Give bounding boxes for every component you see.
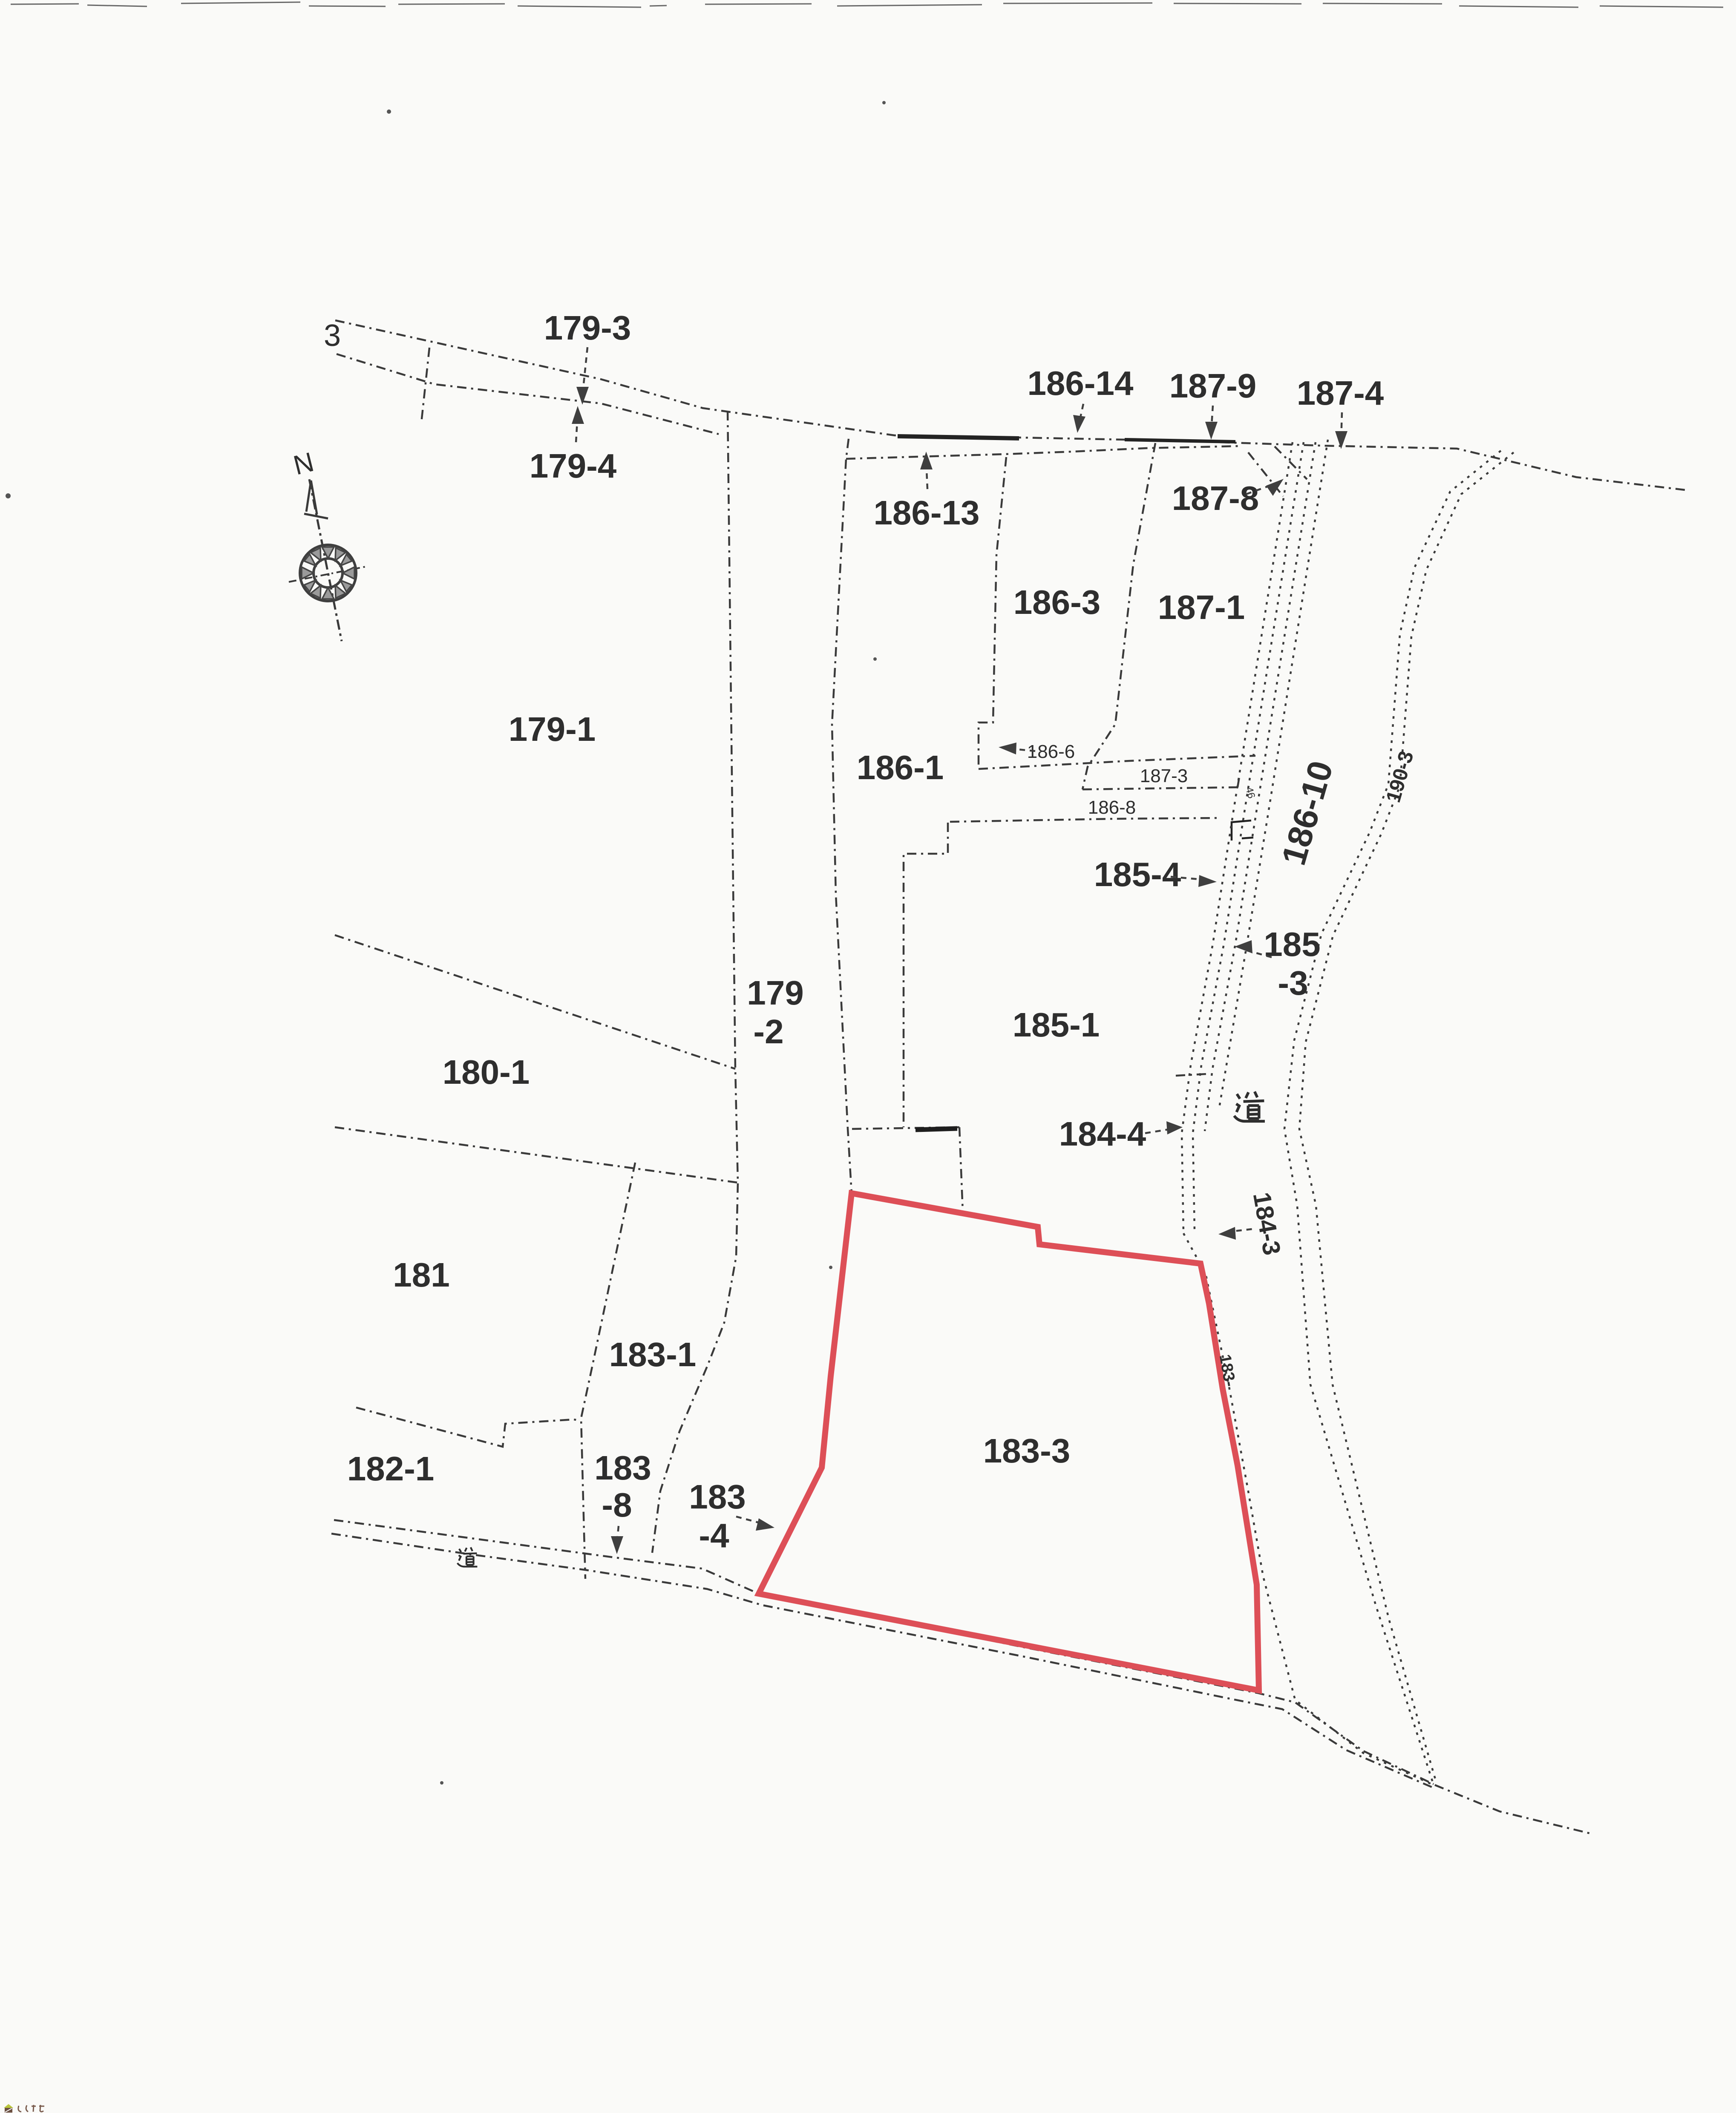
svg-text:183-3: 183-3 <box>983 1432 1071 1470</box>
svg-text:185-1: 185-1 <box>1013 1006 1100 1044</box>
svg-text:3: 3 <box>324 319 341 353</box>
svg-text:-4: -4 <box>699 1517 729 1555</box>
svg-text:186-3: 186-3 <box>1013 583 1101 621</box>
svg-text:187-1: 187-1 <box>1158 588 1245 626</box>
svg-text:185: 185 <box>1264 925 1320 963</box>
svg-text:186-14: 186-14 <box>1027 364 1134 402</box>
svg-text:183: 183 <box>689 1478 746 1516</box>
svg-text:179-3: 179-3 <box>544 309 631 347</box>
svg-text:182-1: 182-1 <box>347 1450 435 1488</box>
svg-text:179-4: 179-4 <box>530 447 617 485</box>
svg-text:185-4: 185-4 <box>1094 855 1181 893</box>
svg-text:186-1: 186-1 <box>857 748 944 786</box>
svg-text:187-4: 187-4 <box>1297 374 1384 412</box>
svg-text:181: 181 <box>393 1256 449 1294</box>
svg-text:-3: -3 <box>1278 964 1308 1002</box>
svg-text:186-13: 186-13 <box>873 494 979 532</box>
svg-text:186-8: 186-8 <box>1088 797 1136 818</box>
svg-text:-2: -2 <box>753 1013 783 1051</box>
svg-text:179: 179 <box>747 974 803 1012</box>
svg-text:179-1: 179-1 <box>509 710 596 748</box>
svg-text:180-1: 180-1 <box>443 1053 530 1091</box>
svg-text:183: 183 <box>594 1449 651 1487</box>
svg-text:187-9: 187-9 <box>1169 367 1257 405</box>
svg-text:187-3: 187-3 <box>1140 766 1188 786</box>
svg-text:184-4: 184-4 <box>1059 1115 1146 1153</box>
svg-text:-8: -8 <box>602 1486 632 1524</box>
svg-text:183-1: 183-1 <box>609 1336 697 1373</box>
svg-text:187-8: 187-8 <box>1172 479 1259 517</box>
